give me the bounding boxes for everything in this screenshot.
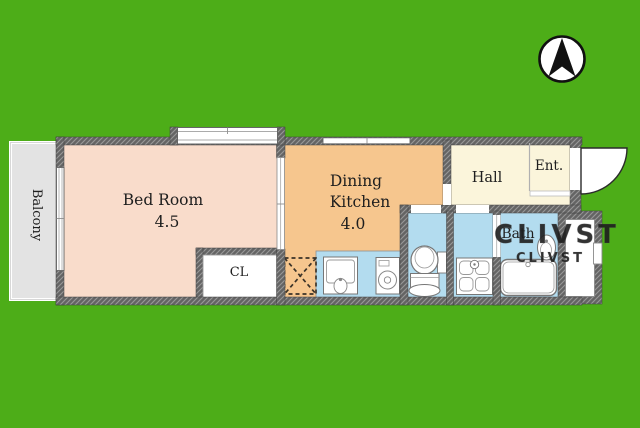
hall-area bbox=[448, 140, 578, 210]
north-compass-icon bbox=[540, 37, 585, 82]
entrance-step bbox=[530, 191, 570, 196]
floor-plan-canvas: Bed Room 4.5 Dining Kitchen 4.0 Hall Ent… bbox=[0, 0, 640, 428]
kitchen-window bbox=[323, 138, 410, 144]
bedroom-label: Bed Room bbox=[123, 191, 204, 209]
entrance-label: Ent. bbox=[535, 158, 563, 174]
dining-kitchen-label-line1: Dining bbox=[330, 172, 382, 190]
bedroom-bay-window bbox=[178, 128, 278, 145]
floor-plan: Bed Room 4.5 Dining Kitchen 4.0 Hall Ent… bbox=[0, 0, 640, 428]
bedroom-sliding-door bbox=[277, 158, 285, 250]
balcony-label: Balcony bbox=[29, 189, 44, 242]
balcony-window bbox=[57, 168, 65, 271]
hall-label: Hall bbox=[472, 170, 503, 186]
washing-machine-icon bbox=[376, 258, 400, 295]
watermark-line2: CLIVST bbox=[516, 251, 585, 266]
dining-kitchen-label-line2: Kitchen bbox=[330, 193, 391, 211]
bedroom-area-value: 4.5 bbox=[155, 213, 180, 231]
kitchen-sink-icon bbox=[324, 257, 358, 294]
watermark-line1: CLIVST bbox=[494, 220, 620, 250]
closet-label: CL bbox=[230, 265, 249, 280]
dining-kitchen-area-value: 4.0 bbox=[341, 215, 366, 233]
washbasin-icon bbox=[457, 258, 493, 295]
